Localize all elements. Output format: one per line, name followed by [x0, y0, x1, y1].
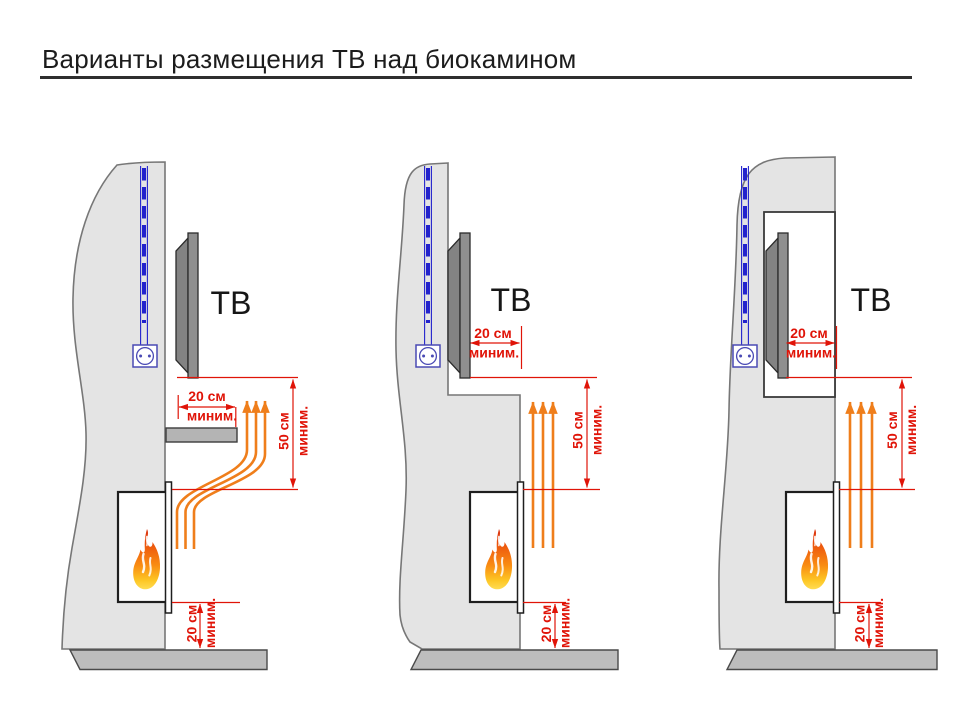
title-underline: [40, 76, 912, 79]
dim-20cm-label: 20 см: [474, 325, 512, 341]
floor-slab: [727, 650, 937, 670]
dimension-floor-clearance-20cm: 20 см миним.: [172, 598, 240, 648]
variant-2-recessed-tv-diagram: 20 см миним. 50 см миним. 20 см миним. Т…: [396, 163, 618, 670]
slide: Варианты размещения ТВ над биокамином: [0, 0, 970, 728]
airflow-arrows: [850, 402, 872, 548]
variant-3-niche-tv-diagram: 20 см миним. 50 см миним. 20 см миним. Т…: [719, 157, 937, 670]
power-outlet: [133, 345, 157, 367]
dim-20cm-label: 20 см: [790, 325, 828, 341]
dimension-recess-depth-20cm: 20 см миним.: [469, 325, 522, 369]
biofireplace: [470, 482, 524, 613]
dim-min-label: миним.: [295, 406, 311, 456]
tv-profile: [766, 233, 788, 378]
dim-min-label: миним.: [202, 598, 218, 648]
dim-50cm-label: 50 см: [884, 411, 900, 449]
dimension-floor-clearance-20cm: 20 см миним.: [523, 598, 573, 648]
tv-label: ТВ: [851, 282, 892, 318]
dim-min-label: миним.: [870, 598, 886, 648]
dim-min-label: миним.: [903, 405, 919, 455]
dim-20cm-label: 20 см: [184, 605, 200, 643]
biofireplace: [786, 482, 840, 613]
dim-20cm-label: 20 см: [852, 605, 868, 643]
dim-50cm-label: 50 см: [570, 411, 586, 449]
dim-min-label: миним.: [557, 598, 573, 648]
dim-20cm-label: 20 см: [538, 605, 554, 643]
diagram-canvas: 20 см миним. 50 см миним. 20 см миним. Т…: [0, 0, 970, 728]
mantel-shelf: [166, 428, 237, 442]
power-outlet: [733, 345, 757, 367]
dim-min-label: миним.: [187, 408, 237, 424]
floor-slab: [411, 650, 618, 670]
dim-20cm-label: 20 см: [188, 388, 226, 404]
tv-profile: [176, 233, 198, 378]
biofireplace: [118, 482, 172, 613]
dim-min-label: миним.: [469, 345, 519, 361]
power-outlet: [416, 345, 440, 367]
tv-label: ТВ: [211, 285, 252, 321]
variant-1-shelf-diagram: 20 см миним. 50 см миним. 20 см миним. Т…: [62, 162, 311, 670]
airflow-arrows: [533, 402, 553, 548]
floor-slab: [70, 650, 267, 670]
dim-min-label: миним.: [786, 345, 836, 361]
tv-profile: [448, 233, 470, 378]
dim-min-label: миним.: [589, 405, 605, 455]
dimension-floor-clearance-20cm: 20 см миним.: [839, 598, 886, 648]
tv-label: ТВ: [491, 282, 532, 318]
page-title: Варианты размещения ТВ над биокамином: [42, 44, 576, 75]
dim-50cm-label: 50 см: [276, 412, 292, 450]
